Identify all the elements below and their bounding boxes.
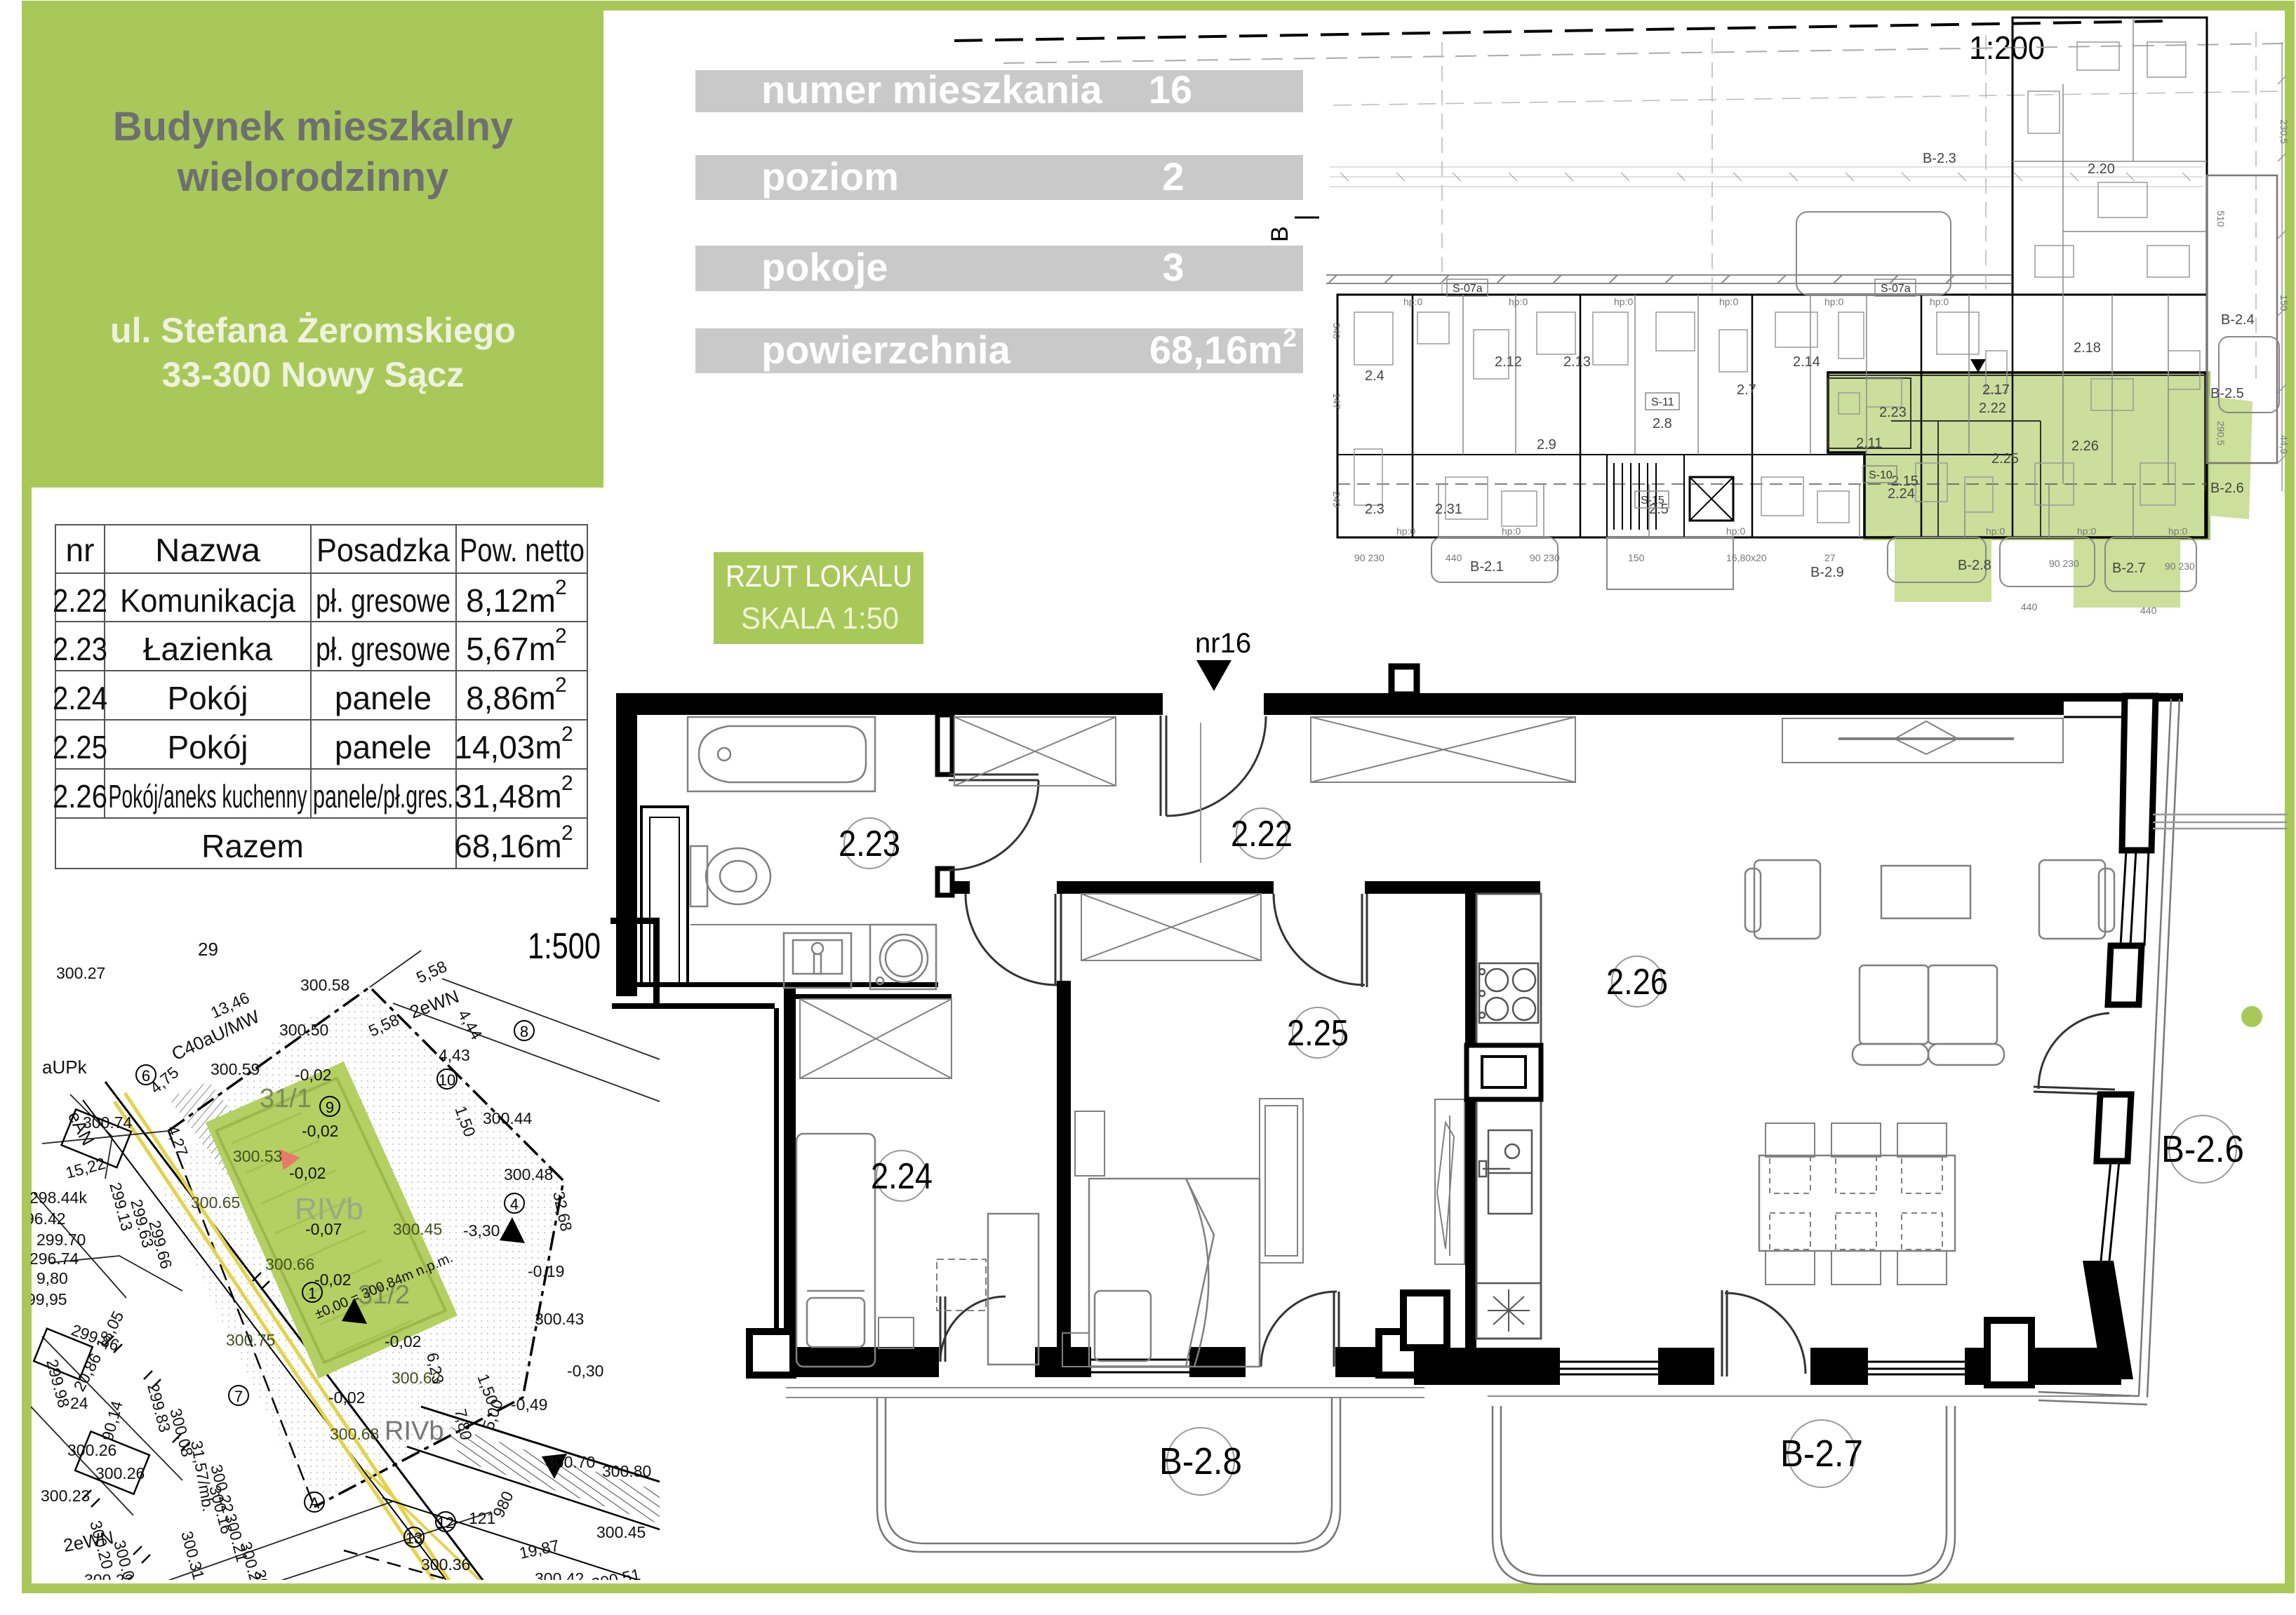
svg-text:150: 150 <box>1628 552 1645 563</box>
svg-text:panele/pł.gres.: panele/pł.gres. <box>313 778 453 815</box>
svg-text:2.12: 2.12 <box>1495 354 1522 370</box>
svg-text:powierzchnia: powierzchnia <box>761 328 1011 372</box>
svg-text:hp:0: hp:0 <box>1614 296 1633 307</box>
svg-text:2.31: 2.31 <box>1435 502 1462 517</box>
svg-text:2.17: 2.17 <box>1982 382 2010 398</box>
svg-text:300.23: 300.23 <box>41 1487 90 1505</box>
svg-text:hp:0: hp:0 <box>1502 525 1521 537</box>
svg-text:2: 2 <box>555 576 567 599</box>
svg-text:27: 27 <box>1824 552 1836 563</box>
svg-text:440: 440 <box>1446 552 1462 563</box>
svg-text:B-2.3: B-2.3 <box>1923 151 1956 166</box>
svg-text:2.23: 2.23 <box>53 631 107 667</box>
svg-text:hp:0: hp:0 <box>1930 296 1949 307</box>
svg-text:Posadzka: Posadzka <box>316 532 450 568</box>
svg-text:8,86m: 8,86m <box>466 680 556 716</box>
svg-text:B-2.1: B-2.1 <box>1470 559 1504 575</box>
svg-text:9: 9 <box>326 1099 334 1116</box>
svg-text:4: 4 <box>510 1195 519 1213</box>
svg-text:2.11: 2.11 <box>1856 436 1882 451</box>
svg-text:24: 24 <box>70 1394 88 1412</box>
svg-text:299.83: 299.83 <box>144 1382 174 1435</box>
svg-text:300.65: 300.65 <box>191 1193 240 1212</box>
svg-text:300.36: 300.36 <box>421 1555 470 1574</box>
svg-text:90 230: 90 230 <box>1530 552 1560 563</box>
svg-text:68,16m: 68,16m <box>1149 328 1283 372</box>
svg-text:300.44: 300.44 <box>483 1109 533 1127</box>
svg-text:16,80x20: 16,80x20 <box>1726 552 1767 563</box>
svg-text:B-2.7: B-2.7 <box>1780 1433 1863 1475</box>
svg-text:Pow. netto: Pow. netto <box>460 532 585 568</box>
svg-text:4,27: 4,27 <box>163 1123 192 1159</box>
svg-text:340: 340 <box>1331 323 1342 340</box>
svg-text:2.25: 2.25 <box>1991 451 2019 467</box>
svg-text:150: 150 <box>2278 295 2290 311</box>
svg-text:4,75: 4,75 <box>147 1063 182 1097</box>
svg-text:SKALA 1:50: SKALA 1:50 <box>741 601 899 636</box>
svg-text:147: 147 <box>1331 393 1342 410</box>
svg-text:300.31: 300.31 <box>178 1529 208 1582</box>
svg-text:Pokój/aneks kuchenny: Pokój/aneks kuchenny <box>109 778 307 815</box>
svg-text:2.24: 2.24 <box>1888 486 1915 502</box>
svg-text:2.26: 2.26 <box>1606 962 1668 1003</box>
svg-text:15,22: 15,22 <box>64 1154 107 1182</box>
svg-text:290,5: 290,5 <box>2215 421 2227 445</box>
svg-text:2.22: 2.22 <box>1231 814 1293 855</box>
svg-text:90,14: 90,14 <box>98 1399 126 1443</box>
svg-text:5,67m: 5,67m <box>466 631 556 667</box>
svg-text:299.98: 299.98 <box>43 1358 73 1410</box>
svg-text:4,44: 4,44 <box>455 1007 486 1043</box>
svg-text:aUPk: aUPk <box>42 1057 88 1078</box>
svg-text:B-2.7: B-2.7 <box>2112 561 2146 576</box>
svg-text:90 230: 90 230 <box>1354 552 1384 563</box>
svg-text:300.80: 300.80 <box>602 1462 651 1480</box>
svg-text:300.26: 300.26 <box>95 1464 145 1482</box>
svg-text:2: 2 <box>561 772 573 795</box>
svg-text:hp:0: hp:0 <box>1719 296 1738 307</box>
svg-text:B-2.6: B-2.6 <box>2210 481 2244 496</box>
svg-text:2.13: 2.13 <box>1563 354 1591 370</box>
svg-text:300.45: 300.45 <box>596 1523 646 1541</box>
svg-text:2.26: 2.26 <box>2071 438 2099 454</box>
svg-text:Nazwa: Nazwa <box>155 532 260 568</box>
svg-text:2.26: 2.26 <box>53 778 107 815</box>
svg-text:300.53: 300.53 <box>233 1147 282 1165</box>
svg-text:13: 13 <box>406 1529 422 1547</box>
svg-text:S-07a: S-07a <box>1453 283 1483 295</box>
svg-text:5,58: 5,58 <box>413 957 450 986</box>
svg-text:2: 2 <box>555 674 567 697</box>
svg-text:29: 29 <box>198 939 218 960</box>
svg-text:Pokój: Pokój <box>167 680 248 716</box>
svg-text:A: A <box>309 1494 320 1512</box>
svg-text:4,89: 4,89 <box>363 1576 396 1612</box>
svg-text:440: 440 <box>2140 605 2157 616</box>
svg-text:510: 510 <box>2215 210 2227 227</box>
svg-text:300.75: 300.75 <box>226 1331 275 1349</box>
svg-text:2.9: 2.9 <box>1537 437 1556 453</box>
svg-text:31,48m: 31,48m <box>454 778 561 815</box>
svg-text:panele: panele <box>335 680 432 716</box>
svg-text:2: 2 <box>561 822 573 845</box>
svg-text:31/1: 31/1 <box>260 1084 312 1113</box>
svg-text:2.24: 2.24 <box>53 680 107 716</box>
svg-text:96.42: 96.42 <box>25 1209 66 1228</box>
svg-text:8,12m: 8,12m <box>466 582 556 619</box>
svg-text:2.22: 2.22 <box>1979 401 2006 416</box>
svg-text:nr: nr <box>66 532 95 568</box>
svg-text:44,9: 44,9 <box>2278 435 2290 454</box>
svg-text:2.23: 2.23 <box>839 824 900 864</box>
svg-text:B-2.4: B-2.4 <box>2221 312 2255 328</box>
svg-text:-0,07: -0,07 <box>305 1220 342 1238</box>
svg-text:33-300 Nowy Sącz: 33-300 Nowy Sącz <box>162 355 465 394</box>
svg-text:numer mieszkania: numer mieszkania <box>761 67 1102 112</box>
svg-text:300.68: 300.68 <box>330 1425 379 1443</box>
svg-text:300.45: 300.45 <box>393 1220 442 1238</box>
svg-text:B-2.8: B-2.8 <box>1159 1440 1242 1482</box>
svg-text:-0,49: -0,49 <box>511 1395 547 1414</box>
svg-text:19,87: 19,87 <box>518 1536 561 1562</box>
svg-text:300.58: 300.58 <box>300 976 349 994</box>
svg-text:440: 440 <box>2021 601 2038 612</box>
svg-text:S-11: S-11 <box>1651 396 1674 408</box>
svg-text:2.4: 2.4 <box>1365 368 1384 384</box>
svg-text:hp:0: hp:0 <box>1396 525 1415 537</box>
svg-text:300.26: 300.26 <box>67 1441 116 1459</box>
svg-text:2: 2 <box>1283 323 1297 352</box>
svg-text:Pokój: Pokój <box>167 729 248 765</box>
svg-text:-0,19: -0,19 <box>528 1262 564 1280</box>
svg-text:10: 10 <box>439 1071 455 1089</box>
svg-text:14,03m: 14,03m <box>454 729 561 765</box>
svg-text:2.8: 2.8 <box>1653 416 1672 431</box>
svg-text:300.66: 300.66 <box>265 1255 314 1273</box>
svg-text:S-10: S-10 <box>1869 469 1893 481</box>
svg-text:panele: panele <box>335 729 432 765</box>
svg-text:Razem: Razem <box>201 828 304 864</box>
svg-text:hp:0: hp:0 <box>1726 525 1745 537</box>
svg-text:ul. Stefana Żeromskiego: ul. Stefana Żeromskiego <box>110 311 516 350</box>
svg-text:296.74: 296.74 <box>29 1249 79 1268</box>
svg-text:2eWN: 2eWN <box>407 986 462 1023</box>
svg-text:90 230: 90 230 <box>2165 561 2195 572</box>
svg-text:230,5: 230,5 <box>2278 119 2290 144</box>
svg-text:hp:0: hp:0 <box>1986 525 2005 537</box>
svg-text:S-15: S-15 <box>1641 495 1664 507</box>
svg-text:2: 2 <box>555 624 567 648</box>
svg-text:RZUT LOKALU: RZUT LOKALU <box>726 559 912 594</box>
svg-text:B: B <box>1267 226 1293 242</box>
svg-text:S-07a: S-07a <box>1881 283 1911 295</box>
svg-text:-0,02: -0,02 <box>295 1066 331 1084</box>
svg-text:16: 16 <box>1149 67 1192 112</box>
svg-text:hp:0: hp:0 <box>2077 525 2096 537</box>
svg-text:298.44k: 298.44k <box>29 1188 87 1207</box>
svg-text:299.70: 299.70 <box>36 1231 86 1249</box>
svg-text:B-2.9: B-2.9 <box>1810 565 1844 580</box>
svg-text:2.23: 2.23 <box>1879 405 1907 420</box>
svg-text:2: 2 <box>1162 154 1184 199</box>
svg-text:2.3: 2.3 <box>1365 502 1384 517</box>
svg-text:hp:0: hp:0 <box>1403 296 1422 307</box>
svg-text:2.20: 2.20 <box>2088 161 2115 177</box>
svg-text:99,95: 99,95 <box>27 1290 67 1308</box>
svg-text:nr16: nr16 <box>1195 628 1251 659</box>
svg-text:4,43: 4,43 <box>439 1046 470 1064</box>
svg-text:B-2.8: B-2.8 <box>1958 558 1991 573</box>
svg-text:Łazienka: Łazienka <box>143 631 273 667</box>
svg-text:2.18: 2.18 <box>2074 340 2101 356</box>
svg-text:300.70: 300.70 <box>546 1453 595 1471</box>
svg-text:Budynek mieszkalny: Budynek mieszkalny <box>113 104 514 149</box>
svg-text:B-2.5: B-2.5 <box>2210 386 2244 401</box>
svg-text:2.25: 2.25 <box>53 729 107 765</box>
svg-text:pł. gresowe: pł. gresowe <box>316 582 450 619</box>
svg-text:2.25: 2.25 <box>1287 1013 1349 1054</box>
svg-text:-0,02: -0,02 <box>314 1271 351 1289</box>
svg-text:2.24: 2.24 <box>871 1156 933 1197</box>
svg-text:300.48: 300.48 <box>504 1165 553 1184</box>
svg-text:90 230: 90 230 <box>2049 558 2079 569</box>
svg-text:poziom: poziom <box>761 154 899 199</box>
svg-text:pł. gresowe: pł. gresowe <box>316 631 450 667</box>
svg-text:-0,02: -0,02 <box>385 1332 421 1351</box>
svg-text:300.58: 300.58 <box>330 1604 379 1615</box>
svg-text:pokoje: pokoje <box>761 245 888 289</box>
svg-text:wielorodzinny: wielorodzinny <box>177 154 449 200</box>
svg-text:9,80: 9,80 <box>36 1269 68 1287</box>
svg-text:20,86: 20,86 <box>69 1350 105 1394</box>
svg-text:2.14: 2.14 <box>1793 354 1820 370</box>
svg-text:1:500: 1:500 <box>528 926 601 967</box>
svg-text:300.43: 300.43 <box>535 1310 584 1328</box>
svg-text:12: 12 <box>437 1514 454 1532</box>
svg-text:-0,02: -0,02 <box>328 1388 365 1407</box>
svg-text:B-2.6: B-2.6 <box>2161 1128 2244 1170</box>
svg-text:-3,30: -3,30 <box>463 1221 500 1240</box>
svg-text:-0,02: -0,02 <box>302 1122 338 1140</box>
svg-text:-0,02: -0,02 <box>289 1164 326 1182</box>
svg-text:300.50: 300.50 <box>279 1021 328 1039</box>
svg-text:2.7: 2.7 <box>1737 382 1756 398</box>
svg-text:8: 8 <box>520 1023 528 1040</box>
svg-text:hp:0: hp:0 <box>2168 525 2187 537</box>
svg-text:249: 249 <box>1331 491 1342 508</box>
svg-text:7: 7 <box>234 1388 243 1405</box>
svg-text:300.59: 300.59 <box>211 1060 260 1078</box>
svg-text:68,16m: 68,16m <box>454 828 561 864</box>
svg-text:RIVb: RIVb <box>385 1416 443 1446</box>
svg-text:hp:0: hp:0 <box>1509 296 1528 307</box>
svg-text:2.22: 2.22 <box>53 582 107 619</box>
svg-text:2: 2 <box>561 723 573 746</box>
svg-text:hp:0: hp:0 <box>1824 296 1843 307</box>
svg-text:300.27: 300.27 <box>56 964 105 982</box>
svg-text:3: 3 <box>1162 245 1184 289</box>
svg-text:-0,30: -0,30 <box>567 1362 603 1380</box>
svg-text:Komunikacja: Komunikacja <box>120 582 295 619</box>
